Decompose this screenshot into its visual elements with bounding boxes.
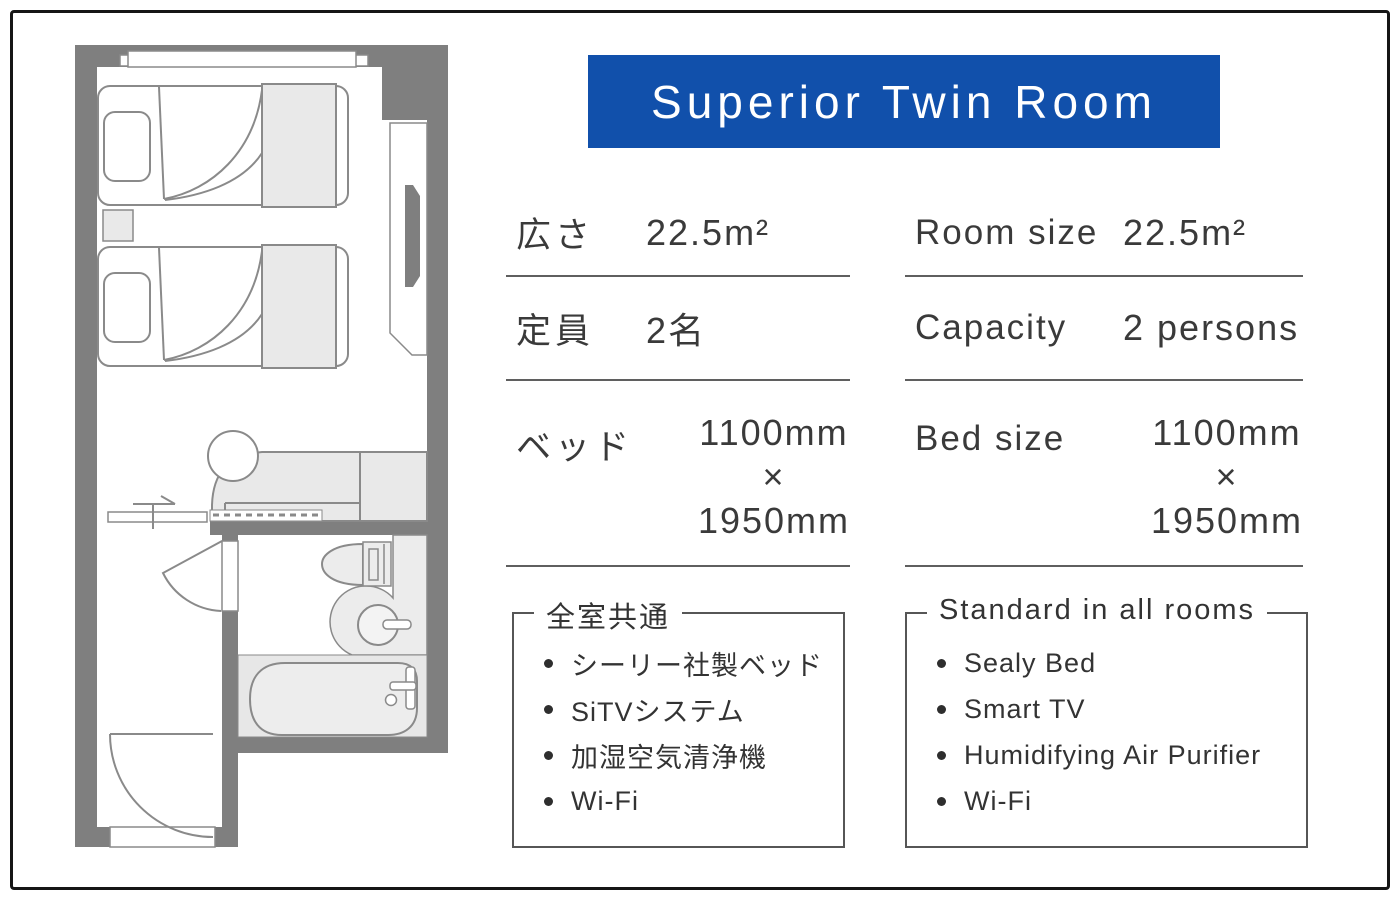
multiply-sign: × xyxy=(1151,455,1303,499)
feature-item: 加湿空気清浄機 xyxy=(544,740,843,770)
spec-row-size-jp: 広さ 22.5m² xyxy=(506,190,850,277)
wall-top-right-block xyxy=(382,62,427,120)
feature-item: Wi-Fi xyxy=(544,786,843,816)
bullet-icon xyxy=(544,797,553,806)
bullet-icon xyxy=(544,659,553,668)
bed-1-pillow xyxy=(104,112,150,181)
spec-label: 広さ xyxy=(506,207,646,258)
spec-value: 2名 xyxy=(646,302,706,354)
spec-label: Capacity xyxy=(905,308,1123,348)
features-title: Standard in all rooms xyxy=(927,594,1267,627)
twin-bed-2 xyxy=(98,245,348,368)
bullet-icon xyxy=(937,797,946,806)
spec-label: Bed size xyxy=(905,411,1123,459)
wall-right xyxy=(427,45,448,753)
entrance-door xyxy=(110,734,215,847)
wall-left xyxy=(75,45,97,847)
feature-item: Wi-Fi xyxy=(937,786,1306,816)
slide-direction-arrow-icon xyxy=(133,496,175,504)
feature-item: Sealy Bed xyxy=(937,648,1306,678)
room-info-page: Superior Twin Room 広さ 22.5m² 定員 2名 ベッド 1… xyxy=(0,0,1400,900)
bathroom-door xyxy=(163,541,238,611)
sliding-door-leaf xyxy=(108,512,207,522)
sink-faucet xyxy=(383,620,411,629)
sofa xyxy=(208,431,427,521)
bullet-icon xyxy=(937,751,946,760)
bullet-icon xyxy=(544,751,553,760)
features-list: Sealy Bed Smart TV Humidifying Air Purif… xyxy=(907,648,1306,816)
features-list: シーリー社製ベッド SiTVシステム 加湿空気清浄機 Wi-Fi xyxy=(514,648,843,816)
window xyxy=(120,51,368,67)
spec-label: Room size xyxy=(905,213,1123,253)
feature-label: Sealy Bed xyxy=(964,648,1096,679)
nightstand xyxy=(103,210,133,241)
bed-length: 1950mm xyxy=(698,499,850,543)
features-box-en: Standard in all rooms Sealy Bed Smart TV… xyxy=(905,612,1308,848)
toilet xyxy=(322,542,391,586)
spec-label: 定員 xyxy=(506,303,646,354)
features-title: 全室共通 xyxy=(534,594,682,636)
feature-item: Humidifying Air Purifier xyxy=(937,740,1306,770)
feature-label: SiTVシステム xyxy=(571,690,745,729)
twin-bed-1 xyxy=(98,84,348,207)
bullet-icon xyxy=(544,705,553,714)
spec-row-capacity-en: Capacity 2 persons xyxy=(905,277,1303,381)
room-title-banner: Superior Twin Room xyxy=(588,55,1220,148)
spec-row-bed-en: Bed size 1100mm × 1950mm xyxy=(905,381,1303,567)
bed-2-pillow xyxy=(104,273,150,342)
bed-width: 1100mm xyxy=(698,411,850,455)
bullet-icon xyxy=(937,705,946,714)
spec-label: ベッド xyxy=(506,411,646,470)
spec-row-capacity-jp: 定員 2名 xyxy=(506,277,850,381)
tv-cabinet xyxy=(390,123,427,355)
bed-size-value: 1100mm × 1950mm xyxy=(1151,411,1303,543)
feature-item: Smart TV xyxy=(937,694,1306,724)
wall-mid xyxy=(210,521,427,535)
multiply-sign: × xyxy=(698,455,850,499)
feature-label: Smart TV xyxy=(964,694,1086,725)
feature-item: シーリー社製ベッド xyxy=(544,648,843,678)
spec-row-size-en: Room size 22.5m² xyxy=(905,190,1303,277)
feature-label: Wi-Fi xyxy=(571,786,639,817)
bullet-icon xyxy=(937,659,946,668)
bed-2-duvet xyxy=(262,245,336,368)
feature-label: Wi-Fi xyxy=(964,786,1032,817)
specs-column-jp: 広さ 22.5m² 定員 2名 ベッド 1100mm × 1950mm xyxy=(506,190,850,567)
feature-label: Humidifying Air Purifier xyxy=(964,740,1261,771)
feature-item: SiTVシステム xyxy=(544,694,843,724)
bed-width: 1100mm xyxy=(1151,411,1303,455)
feature-label: 加湿空気清浄機 xyxy=(571,736,767,775)
spec-value: 22.5m² xyxy=(646,212,770,254)
room-title: Superior Twin Room xyxy=(651,75,1157,129)
bathtub xyxy=(238,655,427,737)
feature-label: シーリー社製ベッド xyxy=(571,644,823,683)
spec-value: 2 persons xyxy=(1123,307,1299,349)
features-box-jp: 全室共通 シーリー社製ベッド SiTVシステム 加湿空気清浄機 Wi-Fi xyxy=(512,612,845,848)
round-table xyxy=(208,431,258,481)
spec-row-bed-jp: ベッド 1100mm × 1950mm xyxy=(506,381,850,567)
bed-1-duvet xyxy=(262,84,336,207)
bed-size-value: 1100mm × 1950mm xyxy=(698,411,850,543)
spec-value: 22.5m² xyxy=(1123,212,1247,254)
specs-column-en: Room size 22.5m² Capacity 2 persons Bed … xyxy=(905,190,1303,567)
tv xyxy=(405,185,420,287)
bed-length: 1950mm xyxy=(1151,499,1303,543)
bathroom-door-leaf xyxy=(222,541,238,611)
wall-bath-bottom xyxy=(238,737,448,753)
floor-plan xyxy=(0,0,500,900)
